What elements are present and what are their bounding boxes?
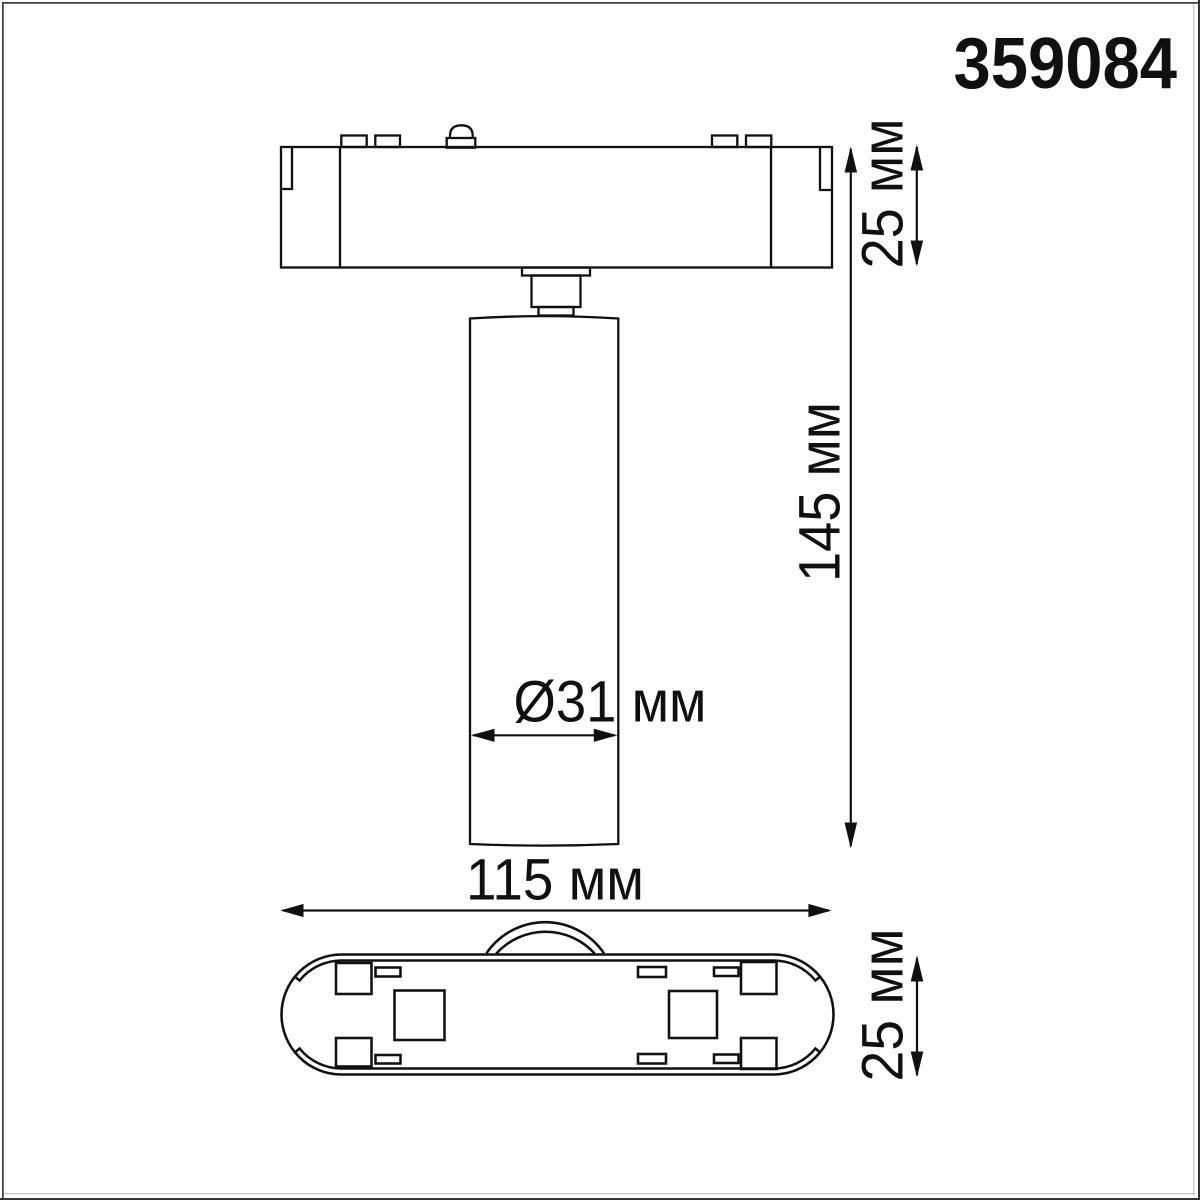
svg-text:25 мм: 25 мм (851, 929, 916, 1082)
svg-text:25 мм: 25 мм (851, 119, 916, 269)
svg-text:Ø31 мм: Ø31 мм (514, 669, 707, 734)
svg-text:115 мм: 115 мм (466, 848, 644, 913)
svg-text:145 мм: 145 мм (787, 402, 852, 582)
svg-text:359084: 359084 (954, 24, 1178, 104)
